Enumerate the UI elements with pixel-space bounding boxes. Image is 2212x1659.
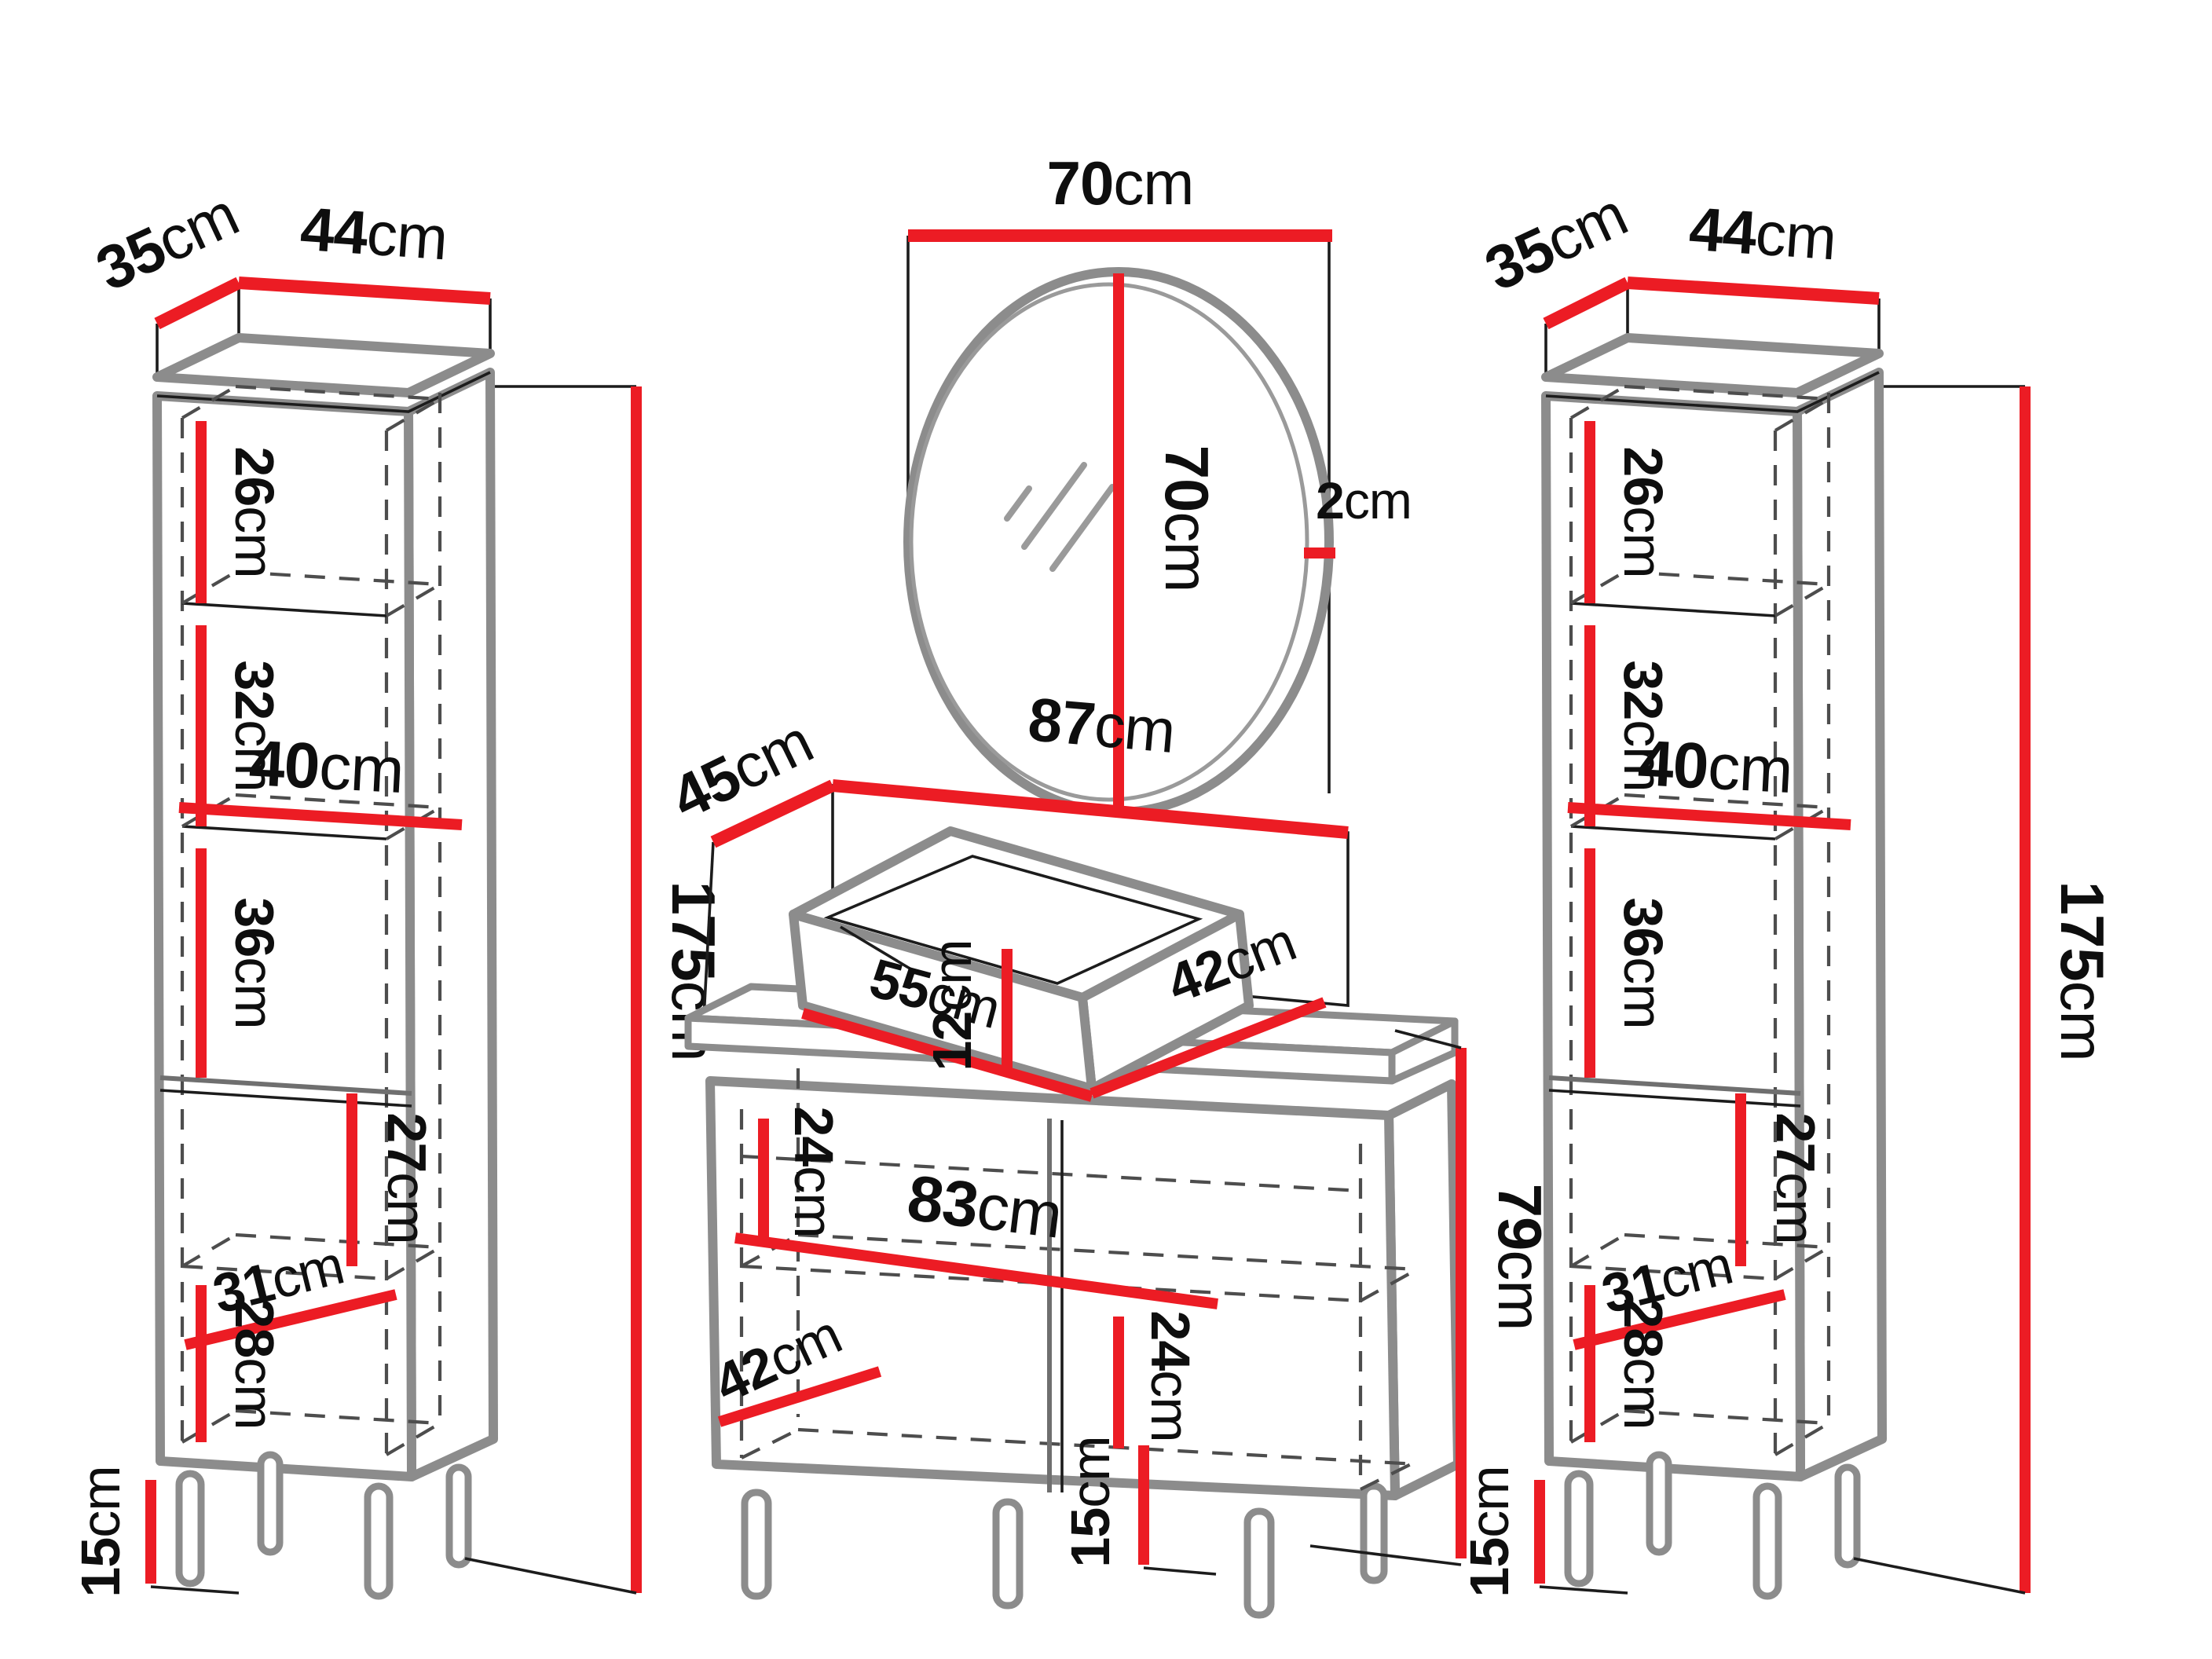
right-cabinet-height-label: 175cm — [2048, 881, 2117, 1060]
vanity-leg-back-right — [1364, 1486, 1384, 1580]
right-cabinet-section3-label: 36cm — [1613, 897, 1674, 1028]
vanity: 45cm 87cm 55cm 12cm 42cm 24cm 83cm 24cm … — [661, 684, 1555, 1615]
mirror-thickness-label: 2cm — [1316, 471, 1412, 529]
vanity-leg-front-left — [745, 1492, 768, 1596]
left-cabinet-shelf-width-label: 40cm — [247, 727, 405, 807]
left-cabinet-door-section-label: 27cm — [376, 1112, 438, 1243]
vanity-interior-left-label: 24cm — [783, 1106, 844, 1237]
mirror-height-label: 70cm — [1152, 445, 1221, 592]
left-cabinet-door-bottom-label: 28cm — [224, 1298, 285, 1429]
right-cabinet-leg-height-label: 15cm — [1459, 1466, 1520, 1597]
left-cabinet-section3-label: 36cm — [224, 897, 285, 1028]
vanity-leg-front-middle — [996, 1502, 1020, 1606]
vanity-interior-right-label: 24cm — [1140, 1310, 1201, 1441]
sink-height-label: 12cm — [921, 939, 983, 1071]
left-cabinet-section1-label: 26cm — [224, 446, 285, 577]
diagram-stage: 35cm 44cm 26cm 32cm 40cm 36cm 27cm 31cm … — [0, 0, 2212, 1659]
right-cabinet: 35cm 44cm 26cm 32cm 40cm 36cm 27cm 31cm … — [1459, 179, 2117, 1597]
dim-tick-vanity-legs — [1144, 1568, 1216, 1574]
left-cabinet: 35cm 44cm 26cm 32cm 40cm 36cm 27cm 31cm … — [70, 179, 728, 1597]
vanity-leg-front-right — [1247, 1511, 1271, 1615]
right-cabinet-section1-label: 26cm — [1613, 446, 1674, 577]
vanity-leg-height-label: 15cm — [1060, 1436, 1121, 1567]
right-cabinet-shelf-width-label: 40cm — [1636, 727, 1794, 807]
mirror-width-label: 70cm — [1047, 148, 1194, 218]
right-cabinet-width-label: 44cm — [1687, 194, 1838, 273]
vanity-right-side — [1389, 1084, 1458, 1496]
vanity-width-label: 87cm — [1025, 684, 1177, 766]
furniture-dimension-diagram: 35cm 44cm 26cm 32cm 40cm 36cm 27cm 31cm … — [0, 0, 2212, 1659]
left-cabinet-width-label: 44cm — [298, 194, 449, 273]
left-cabinet-leg-height-label: 15cm — [70, 1466, 131, 1597]
vanity-depth-label: 45cm — [661, 706, 822, 833]
right-cabinet-door-section-label: 27cm — [1765, 1112, 1826, 1243]
right-cabinet-door-bottom-label: 28cm — [1613, 1298, 1674, 1429]
